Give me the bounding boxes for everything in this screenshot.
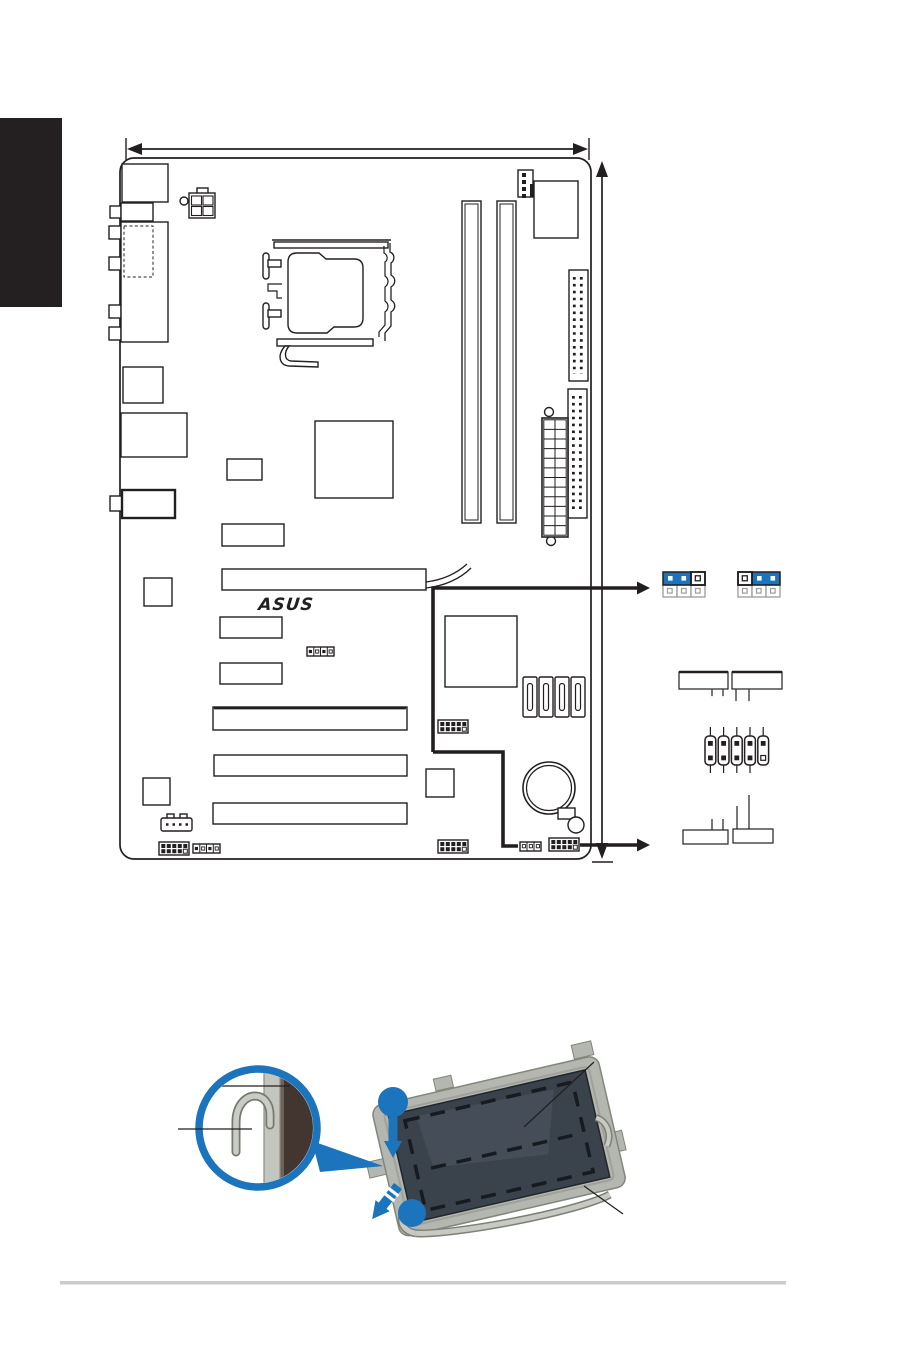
pcie-x16-slot	[222, 569, 426, 590]
page-canvas: ASUS	[0, 0, 900, 1356]
ps2-port	[122, 164, 168, 202]
floppy-connector	[568, 389, 587, 518]
section-tab	[0, 118, 62, 307]
ide-connector	[569, 270, 588, 381]
socket-load-plate	[288, 253, 363, 333]
io-chip	[534, 181, 578, 238]
clrtc-jumper	[520, 842, 541, 851]
chip-square	[144, 578, 172, 606]
motherboard-layout-figure: ASUS	[109, 138, 782, 862]
4pin-jumper	[307, 647, 334, 656]
step-1-marker	[378, 1087, 408, 1117]
pci-slot	[213, 707, 407, 730]
pin-header-diagram	[705, 727, 769, 773]
pci-slot	[213, 803, 407, 824]
manual-page: ASUS	[0, 0, 900, 1356]
audio-jack	[122, 490, 175, 518]
jumper-cap-2-3	[752, 572, 780, 585]
jumper-diagram-right	[738, 572, 780, 597]
usb-header	[438, 720, 468, 733]
jumper-cap-1-2	[663, 572, 691, 585]
footer-divider	[60, 1281, 786, 1285]
vga-com-block	[121, 222, 168, 342]
pcie-x1-slot	[220, 617, 282, 638]
southbridge-chip	[445, 616, 517, 687]
cpu-install-figure	[178, 1039, 636, 1252]
asus-logo: ASUS	[255, 595, 315, 615]
arrow-up-icon	[596, 161, 608, 177]
4pin-jumper	[193, 844, 220, 853]
top-fan-connector	[518, 170, 535, 198]
arrow-right-icon	[637, 839, 650, 852]
chip-square	[143, 778, 170, 805]
arrow-right-icon	[637, 582, 650, 595]
usb-port	[121, 203, 153, 221]
usb-header	[438, 840, 468, 853]
arrow-left-icon	[127, 143, 142, 155]
jumper-diagram-left	[663, 572, 705, 597]
arrow-right-icon	[573, 143, 588, 155]
step-2-marker	[398, 1199, 426, 1227]
northbridge-chip	[315, 421, 393, 498]
audio-ports	[121, 413, 187, 457]
small-chip	[227, 459, 262, 480]
lan-port	[123, 367, 163, 403]
pcie-x1-slot	[220, 663, 282, 684]
small-circle	[568, 817, 584, 833]
usb-header	[549, 838, 579, 851]
small-slot	[222, 524, 284, 546]
front-panel-header	[159, 842, 189, 855]
pci-slot	[214, 755, 407, 776]
chip-square	[426, 769, 454, 797]
atx-power-connector	[542, 408, 568, 546]
